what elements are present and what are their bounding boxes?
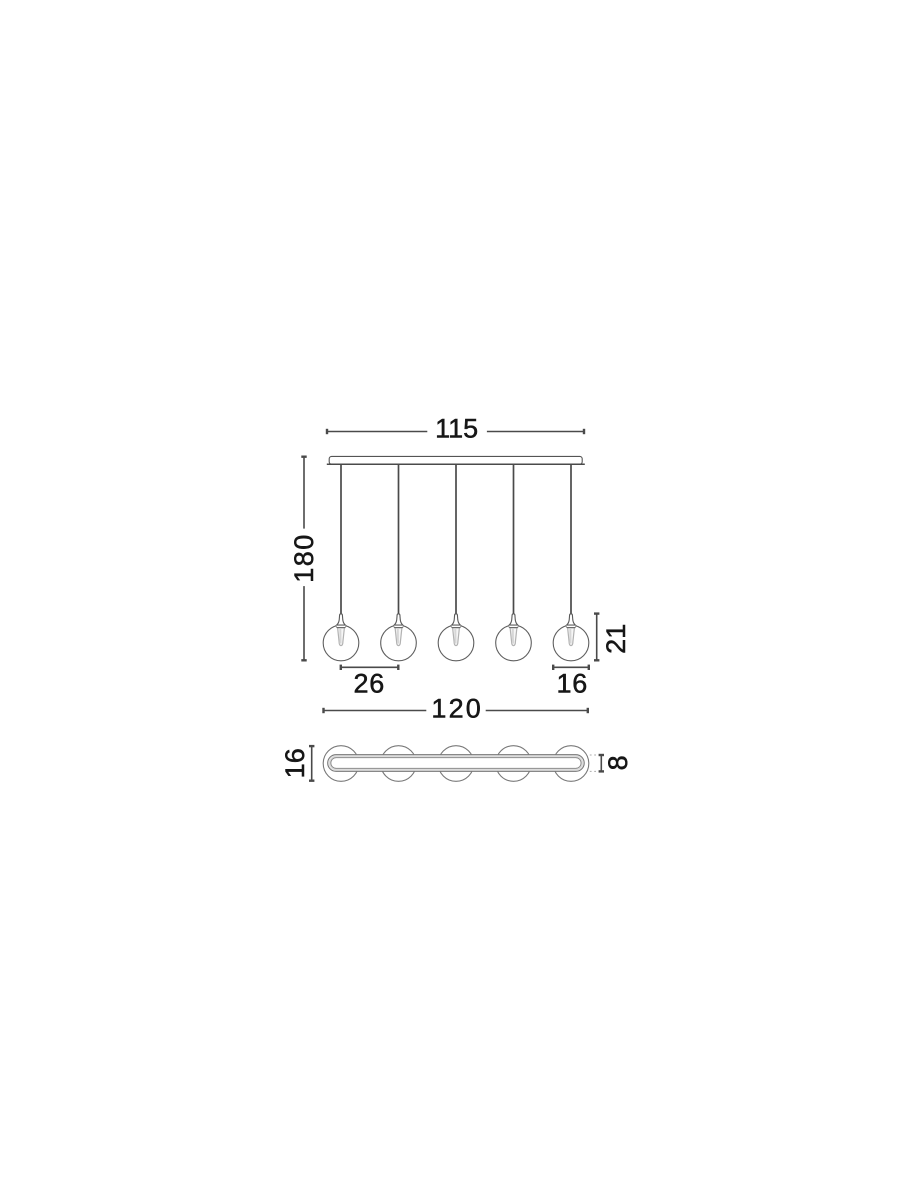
svg-text:180: 180 — [289, 533, 319, 583]
svg-text:115: 115 — [435, 413, 478, 443]
svg-text:8: 8 — [603, 755, 633, 770]
svg-text:16: 16 — [556, 668, 588, 698]
svg-text:21: 21 — [601, 624, 631, 654]
svg-text:16: 16 — [280, 748, 310, 778]
svg-text:120: 120 — [431, 693, 483, 723]
svg-text:26: 26 — [353, 668, 385, 698]
